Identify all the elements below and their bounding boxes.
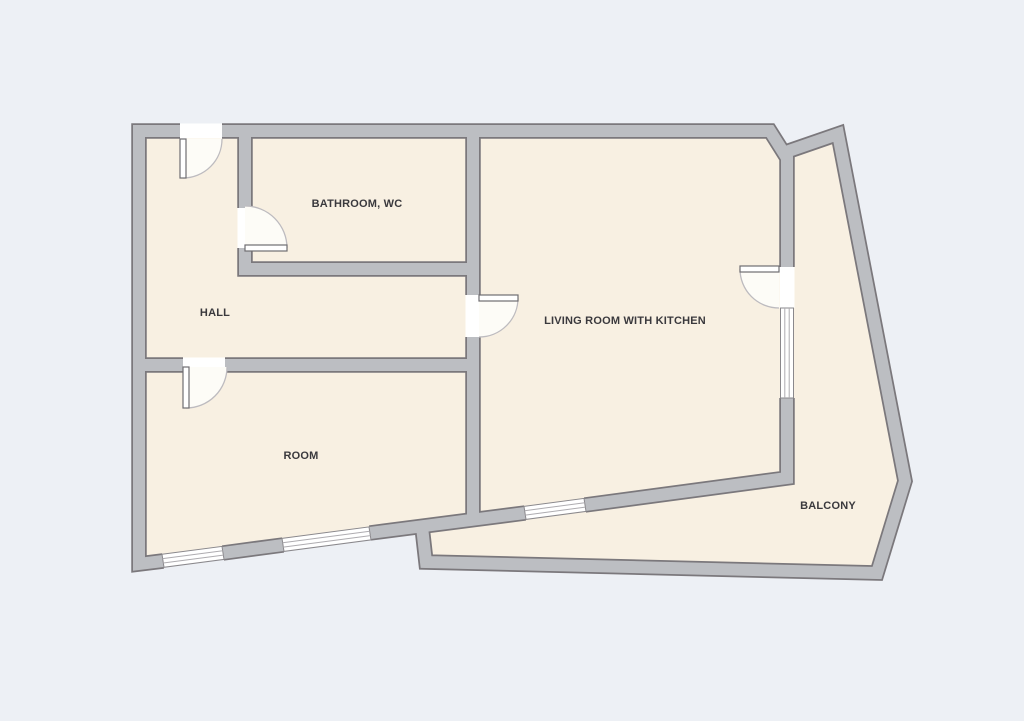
label-bathroom: BATHROOM, WC xyxy=(312,198,403,210)
entrance-door-leaf xyxy=(180,139,186,178)
room-door-leaf xyxy=(183,367,189,408)
floor-plan-canvas: BATHROOM, WC HALL LIVING ROOM WITH KITCH… xyxy=(0,0,1024,721)
label-balcony: BALCONY xyxy=(800,500,856,512)
living-room-door-leaf xyxy=(479,295,518,301)
balcony-door-leaf xyxy=(740,266,779,272)
bathroom-door-leaf xyxy=(245,245,287,251)
label-hall: HALL xyxy=(200,307,230,319)
living-room-window-east xyxy=(781,308,794,398)
living-room-opening xyxy=(466,295,481,337)
label-room: ROOM xyxy=(283,450,318,462)
balcony-opening xyxy=(780,267,795,308)
floor-plan: BATHROOM, WC HALL LIVING ROOM WITH KITCH… xyxy=(0,0,1024,721)
label-living-room: LIVING ROOM WITH KITCHEN xyxy=(544,315,706,327)
entrance-opening xyxy=(180,124,222,139)
